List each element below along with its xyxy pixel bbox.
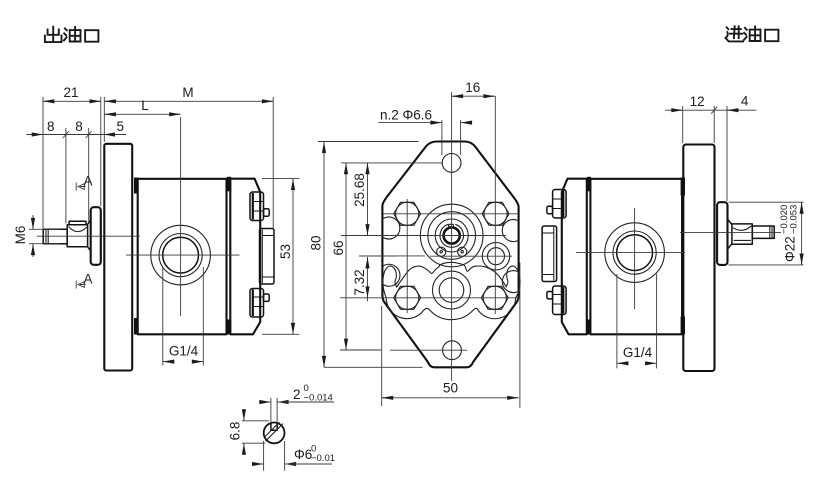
svg-text:80: 80: [309, 235, 324, 250]
svg-text:−0.01: −0.01: [311, 453, 335, 464]
svg-text:G1/4: G1/4: [623, 345, 653, 360]
svg-text:2: 2: [293, 387, 301, 402]
svg-text:Φ22: Φ22: [783, 236, 798, 262]
svg-text:25.68: 25.68: [352, 173, 367, 207]
svg-text:M: M: [182, 85, 193, 100]
svg-text:66: 66: [331, 240, 346, 255]
svg-text:4: 4: [741, 94, 749, 109]
svg-text:7.32: 7.32: [352, 269, 367, 295]
svg-text:G1/4: G1/4: [169, 344, 199, 359]
svg-text:12: 12: [690, 94, 705, 109]
svg-text:M6: M6: [13, 226, 28, 245]
svg-text:16: 16: [465, 80, 480, 95]
svg-text:50: 50: [443, 381, 458, 396]
svg-text:6.8: 6.8: [228, 422, 243, 441]
svg-text:53: 53: [278, 244, 293, 259]
svg-text:A: A: [83, 174, 92, 189]
svg-text:8: 8: [75, 119, 83, 134]
svg-text:A: A: [83, 272, 92, 287]
svg-text:21: 21: [63, 85, 78, 100]
svg-text:−0.053: −0.053: [789, 205, 800, 234]
svg-text:5: 5: [116, 119, 124, 134]
svg-text:Φ6: Φ6: [294, 447, 312, 462]
svg-text:8: 8: [47, 119, 55, 134]
svg-text:−0.014: −0.014: [304, 393, 333, 404]
svg-text:L: L: [141, 98, 149, 113]
svg-text:n.2 Φ6.6: n.2 Φ6.6: [380, 108, 432, 123]
